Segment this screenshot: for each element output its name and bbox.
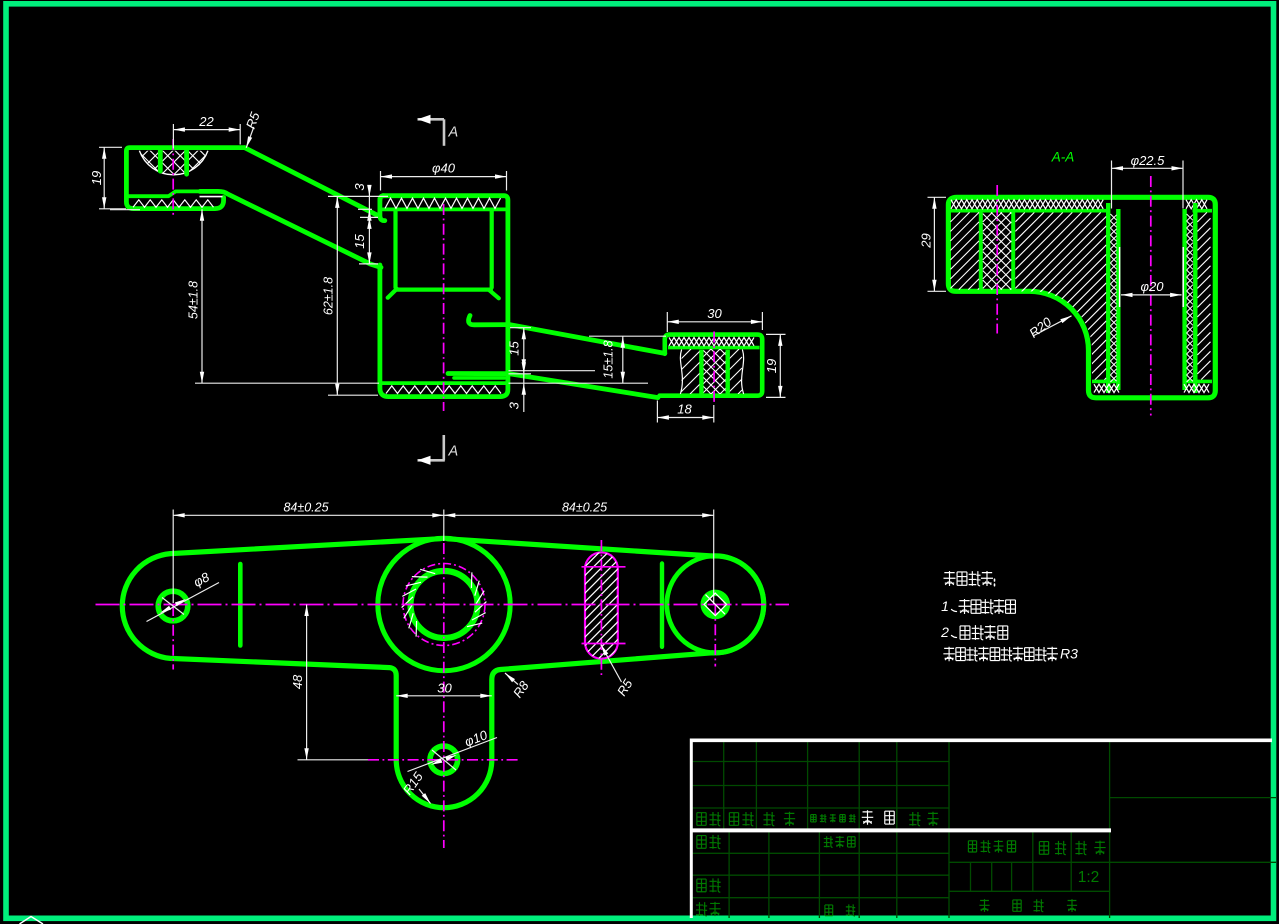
svg-text:18: 18 (677, 402, 692, 417)
svg-text:62±1.8: 62±1.8 (322, 277, 336, 315)
svg-text:84±0.25: 84±0.25 (562, 500, 607, 514)
svg-text:R8: R8 (510, 678, 532, 701)
svg-text:22: 22 (198, 114, 214, 129)
svg-text:φ22.5: φ22.5 (1131, 153, 1166, 168)
svg-text:54±1.8: 54±1.8 (186, 281, 200, 319)
svg-text:R5: R5 (614, 676, 636, 699)
svg-text:15±1.8: 15±1.8 (602, 340, 616, 378)
svg-text:R20: R20 (1026, 314, 1055, 341)
svg-text:A: A (447, 444, 458, 460)
svg-text:1: 1 (941, 598, 949, 614)
svg-text:15: 15 (506, 341, 521, 356)
svg-text:2: 2 (940, 624, 949, 640)
svg-text:84±0.25: 84±0.25 (283, 500, 328, 514)
svg-text:19: 19 (764, 359, 779, 373)
svg-text:φ40: φ40 (432, 161, 456, 176)
svg-text:R5: R5 (243, 109, 263, 130)
svg-text:R3: R3 (1060, 646, 1078, 662)
svg-text:15: 15 (352, 234, 367, 249)
svg-text:3: 3 (352, 183, 367, 191)
svg-text:48: 48 (290, 674, 305, 689)
svg-text:29: 29 (918, 233, 933, 248)
svg-text:A-A: A-A (1051, 150, 1075, 165)
svg-text:A: A (447, 125, 458, 141)
svg-text:φ8: φ8 (191, 569, 213, 590)
svg-text:30: 30 (437, 680, 452, 695)
svg-text:3: 3 (506, 401, 521, 409)
svg-text:19: 19 (89, 171, 104, 185)
svg-text:φ10: φ10 (462, 727, 490, 750)
svg-text:φ20: φ20 (1141, 279, 1165, 294)
svg-text:30: 30 (707, 306, 722, 321)
svg-text:1:2: 1:2 (1078, 869, 1100, 886)
